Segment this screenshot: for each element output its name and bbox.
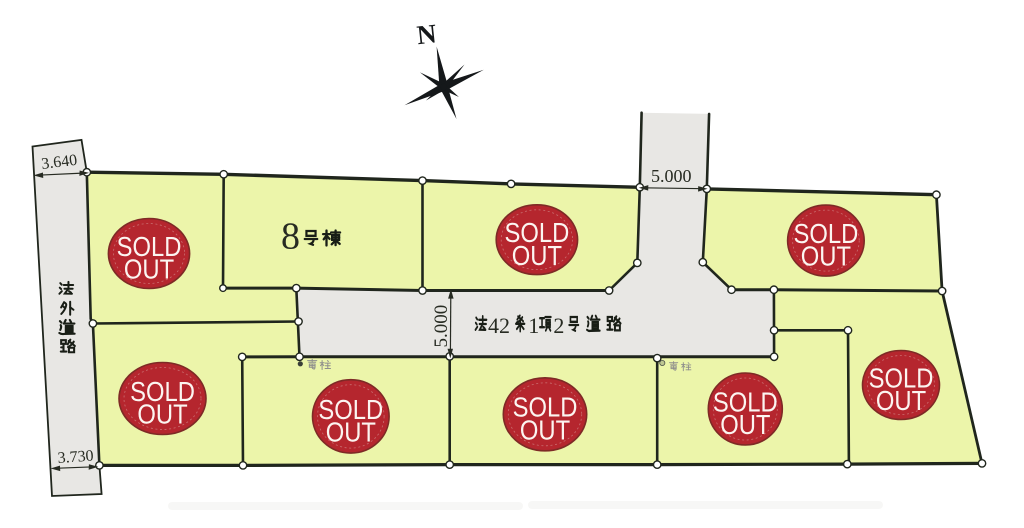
svg-text:3.730: 3.730 [57,448,94,467]
svg-text:5.000: 5.000 [651,166,692,186]
svg-text:OUT: OUT [124,253,174,285]
svg-text:42: 42 [488,313,510,338]
svg-text:5.000: 5.000 [431,305,452,348]
svg-text:OUT: OUT [876,384,926,416]
svg-text:OUT: OUT [326,416,376,448]
svg-text:OUT: OUT [801,240,851,272]
svg-text:OUT: OUT [512,239,562,271]
svg-text:N: N [415,18,438,50]
svg-text:OUT: OUT [137,398,187,430]
svg-text:1: 1 [528,313,539,338]
svg-text:8: 8 [281,216,300,258]
svg-text:2: 2 [553,313,564,338]
svg-text:OUT: OUT [720,408,770,440]
svg-text:OUT: OUT [520,414,570,446]
